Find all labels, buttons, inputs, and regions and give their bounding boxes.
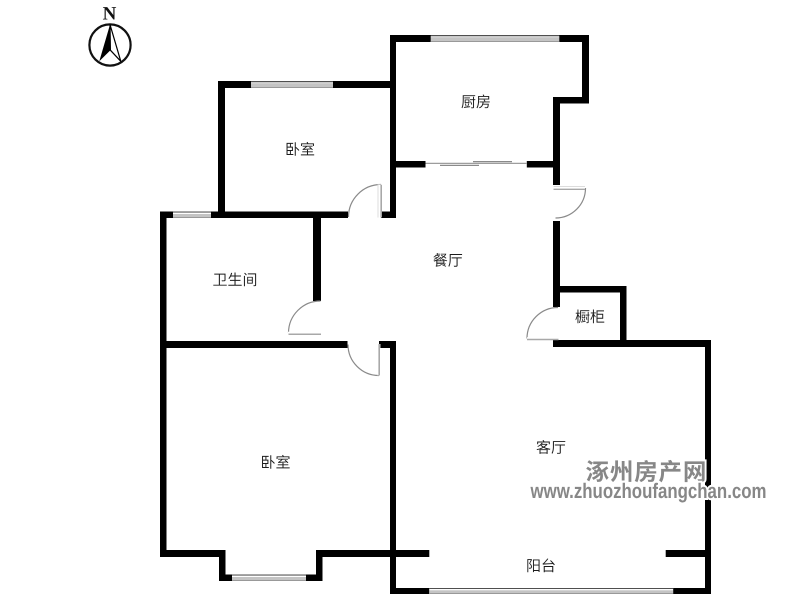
svg-text:N: N bbox=[103, 4, 117, 25]
svg-text:www.zhuozhoufangchan.com: www.zhuozhoufangchan.com bbox=[530, 480, 767, 503]
